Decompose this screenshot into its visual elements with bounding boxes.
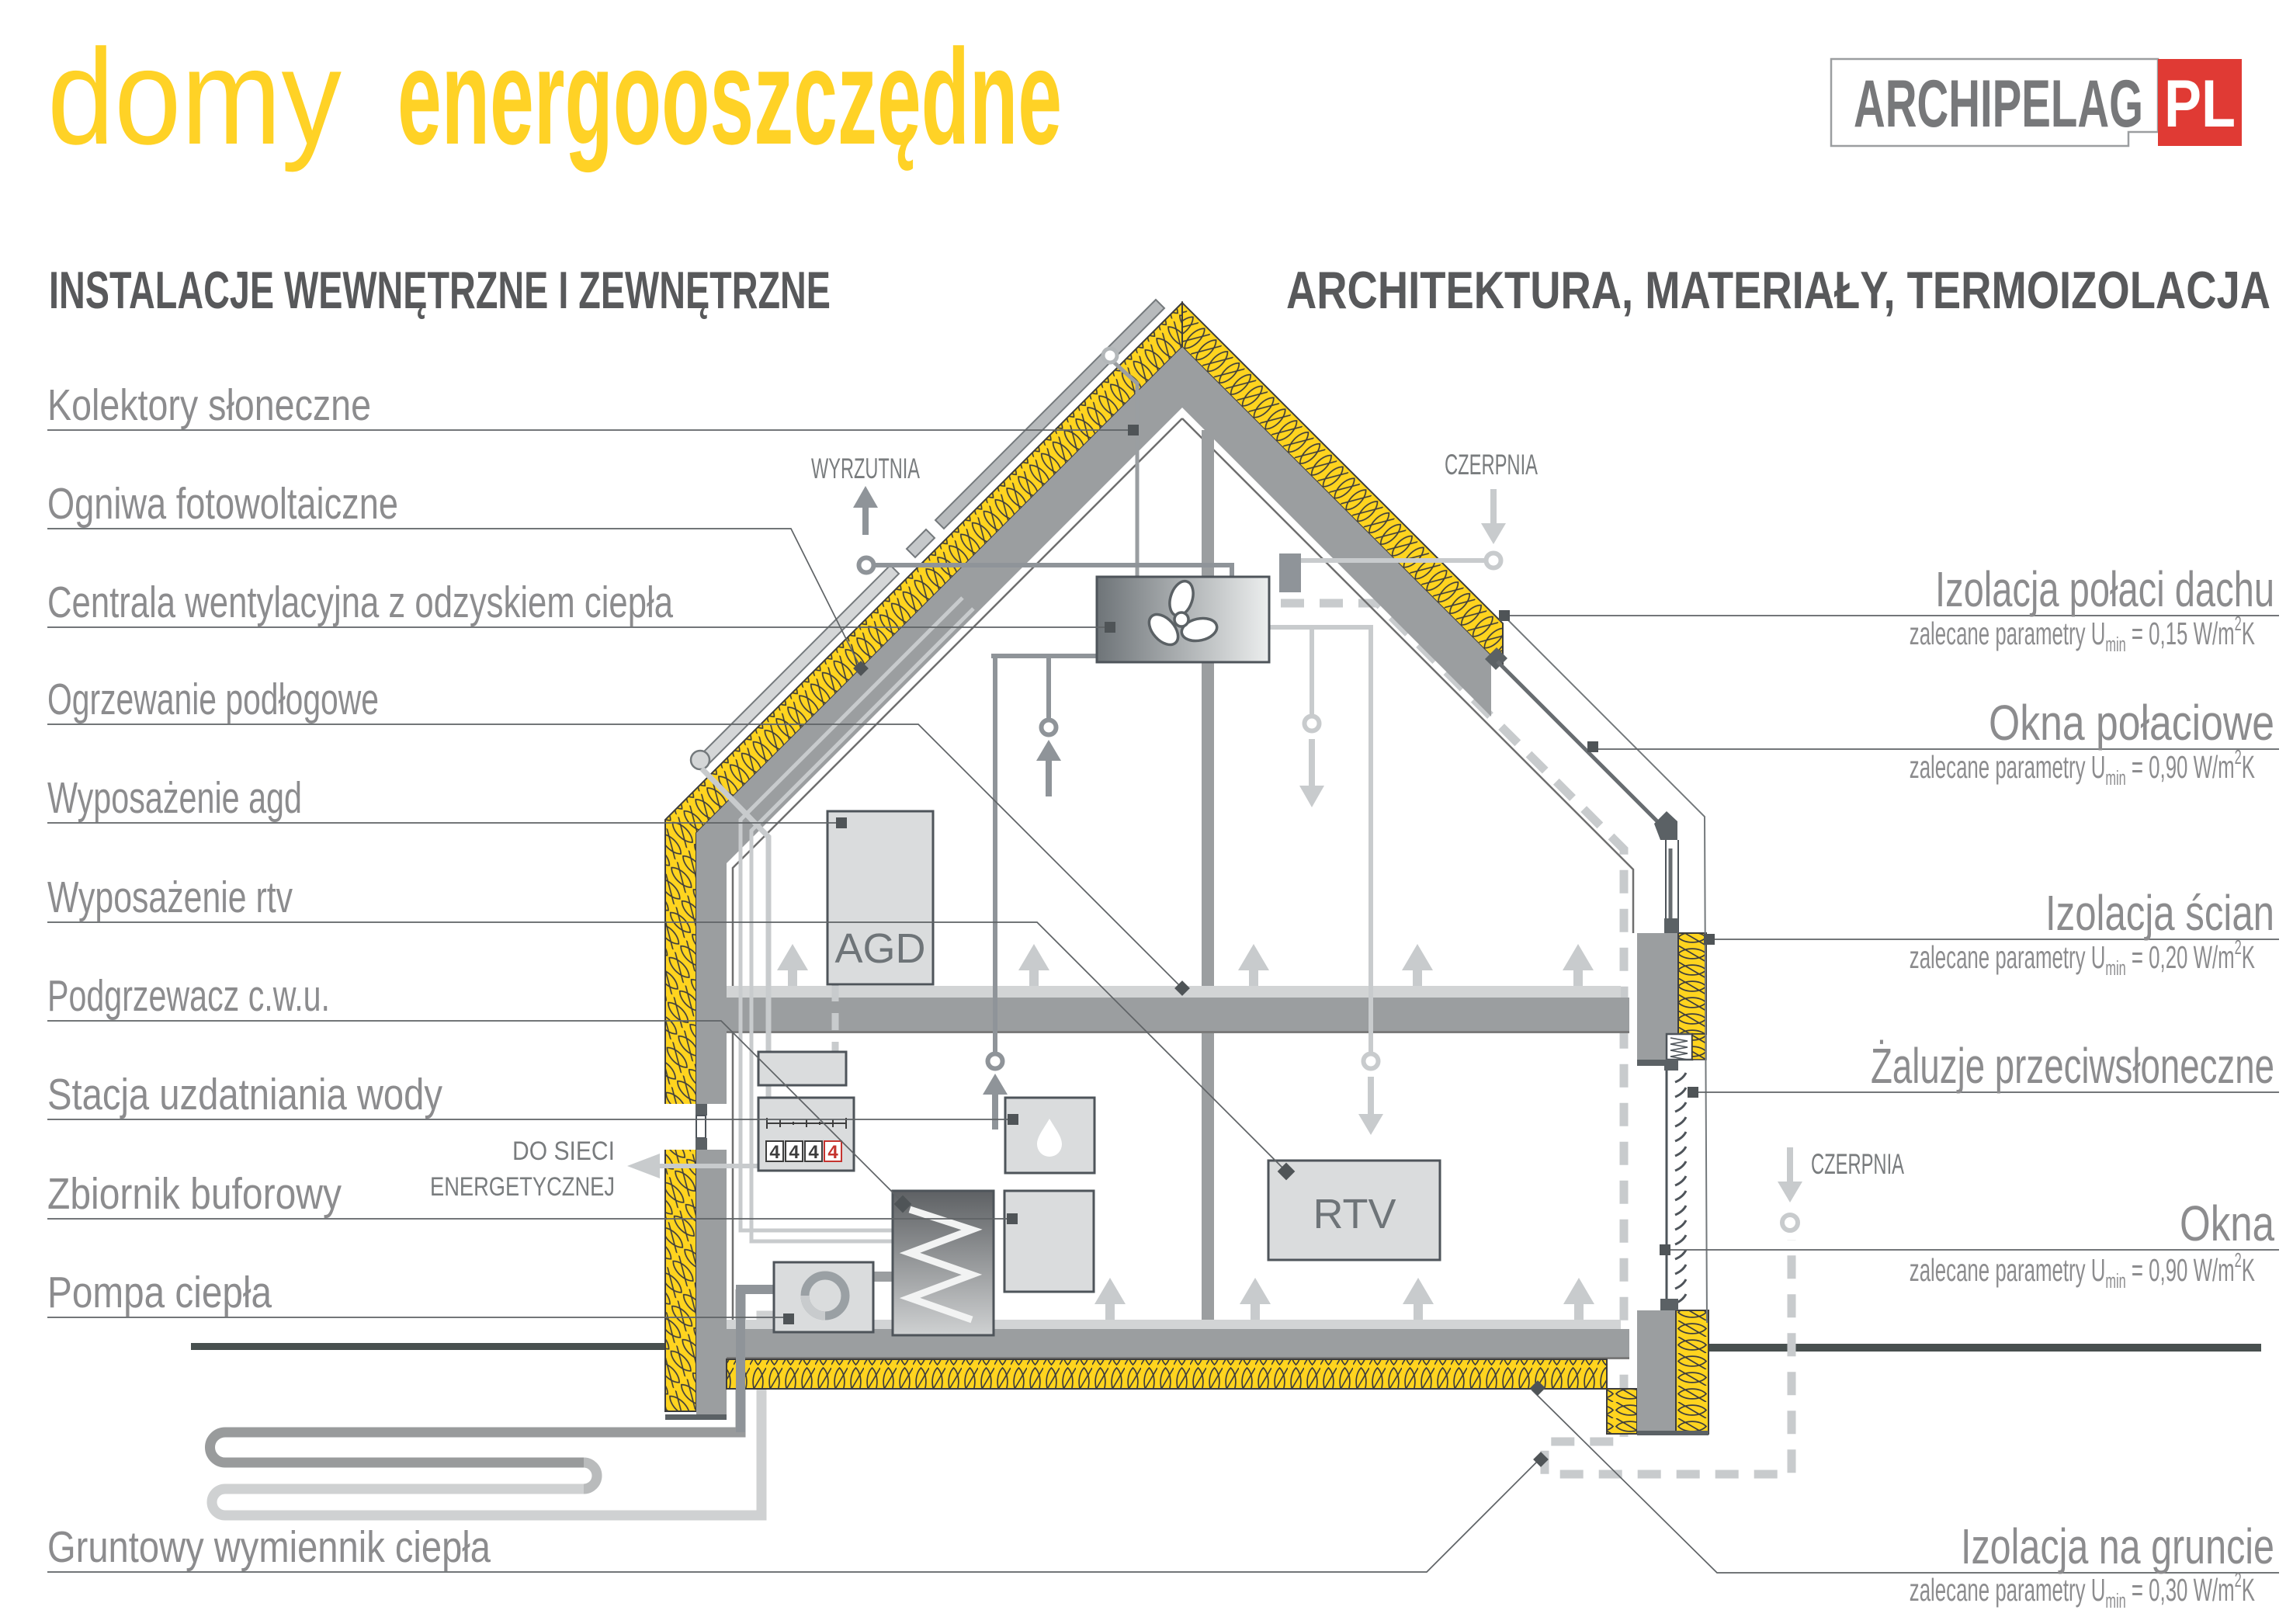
svg-text:4: 4	[827, 1142, 838, 1163]
svg-text:RTV: RTV	[1313, 1191, 1396, 1237]
svg-text:Wyposażenie agd: Wyposażenie agd	[47, 773, 302, 823]
svg-text:Ogrzewanie podłogowe: Ogrzewanie podłogowe	[47, 675, 379, 724]
svg-text:zalecane parametry Umin = 0,90: zalecane parametry Umin = 0,90 W/m2K	[1910, 1248, 2255, 1293]
svg-text:Ogniwa fotowoltaiczne: Ogniwa fotowoltaiczne	[47, 479, 398, 529]
svg-text:Kolektory słoneczne: Kolektory słoneczne	[47, 380, 371, 430]
svg-text:INSTALACJE WEWNĘTRZNE I ZEWNĘT: INSTALACJE WEWNĘTRZNE I ZEWNĘTRZNE	[49, 261, 831, 320]
svg-text:Izolacja na gruncie: Izolacja na gruncie	[1961, 1518, 2274, 1574]
svg-text:CZERPNIA: CZERPNIA	[1445, 449, 1538, 481]
svg-text:domy: domy	[47, 22, 342, 173]
svg-text:ENERGETYCZNEJ: ENERGETYCZNEJ	[430, 1172, 615, 1202]
svg-text:Pompa ciepła: Pompa ciepła	[47, 1268, 272, 1317]
svg-text:zalecane parametry Umin = 0,15: zalecane parametry Umin = 0,15 W/m2K	[1910, 612, 2255, 656]
svg-text:Izolacja ścian: Izolacja ścian	[2045, 885, 2274, 941]
svg-text:Okna połaciowe: Okna połaciowe	[1989, 695, 2274, 751]
svg-text:ARCHIPELAG: ARCHIPELAG	[1854, 67, 2143, 141]
svg-text:CZERPNIA: CZERPNIA	[1811, 1148, 1904, 1180]
svg-text:DO SIECI: DO SIECI	[512, 1136, 615, 1166]
svg-text:Żaluzje przeciwsłoneczne: Żaluzje przeciwsłoneczne	[1871, 1038, 2274, 1094]
svg-text:4: 4	[769, 1142, 780, 1163]
svg-text:Gruntowy wymiennik ciepła: Gruntowy wymiennik ciepła	[47, 1522, 491, 1572]
svg-text:Centrala wentylacyjna z odzysk: Centrala wentylacyjna z odzyskiem ciepła	[47, 578, 673, 627]
svg-text:zalecane parametry Umin = 0,30: zalecane parametry Umin = 0,30 W/m2K	[1910, 1568, 2255, 1612]
svg-text:ARCHITEKTURA, MATERIAŁY, TERMO: ARCHITEKTURA, MATERIAŁY, TERMOIZOLACJA	[1286, 261, 2270, 320]
svg-text:Podgrzewacz c.w.u.: Podgrzewacz c.w.u.	[47, 971, 330, 1021]
svg-text:AGD: AGD	[834, 925, 925, 972]
svg-text:4: 4	[808, 1142, 819, 1163]
svg-text:Izolacja połaci dachu: Izolacja połaci dachu	[1935, 561, 2274, 617]
svg-text:Wyposażenie rtv: Wyposażenie rtv	[47, 873, 293, 922]
svg-text:WYRZUTNIA: WYRZUTNIA	[811, 453, 920, 484]
svg-text:energooszczędne: energooszczędne	[397, 22, 1062, 173]
svg-text:zalecane parametry Umin = 0,20: zalecane parametry Umin = 0,20 W/m2K	[1910, 935, 2255, 980]
svg-text:4: 4	[789, 1142, 800, 1163]
svg-text:Okna: Okna	[2180, 1195, 2274, 1251]
svg-text:zalecane parametry Umin = 0,90: zalecane parametry Umin = 0,90 W/m2K	[1910, 745, 2255, 789]
svg-text:PL: PL	[2164, 67, 2236, 141]
svg-text:Stacja uzdatniania wody: Stacja uzdatniania wody	[47, 1070, 442, 1119]
svg-text:Zbiornik buforowy: Zbiornik buforowy	[47, 1169, 342, 1219]
